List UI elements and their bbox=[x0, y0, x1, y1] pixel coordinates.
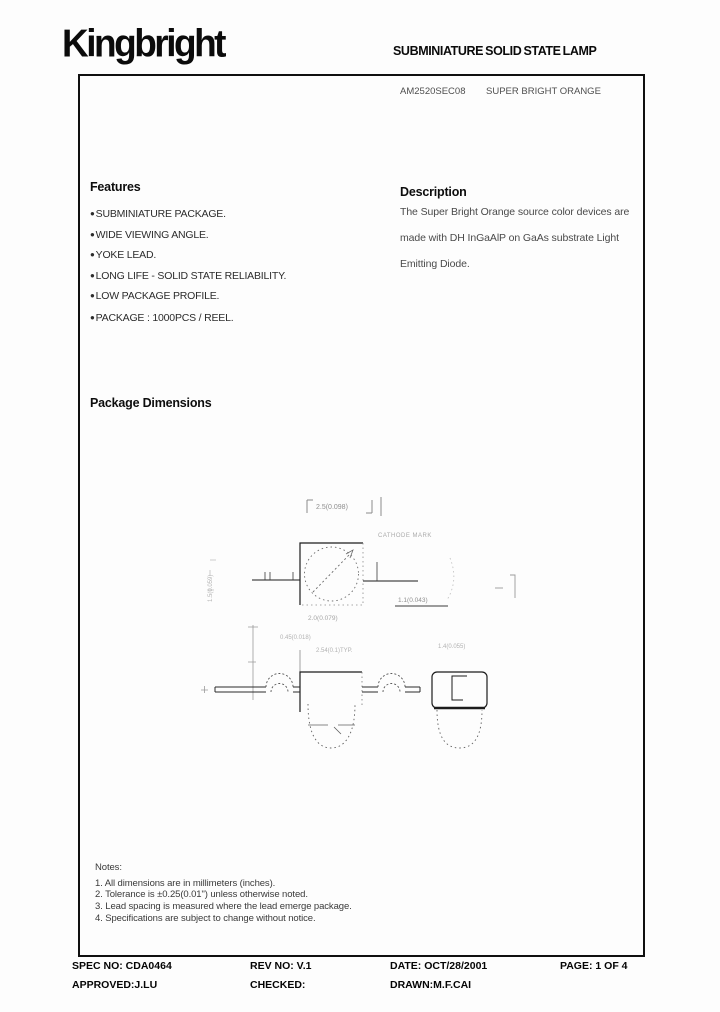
features-heading: Features bbox=[90, 180, 380, 194]
description-line: made with DH InGaAlP on GaAs substrate L… bbox=[400, 225, 650, 251]
bullet-icon: ● bbox=[90, 313, 95, 322]
package-dimensions-heading: Package Dimensions bbox=[90, 396, 211, 410]
document-title: SUBMINIATURE SOLID STATE LAMP bbox=[393, 44, 596, 58]
left-height-label: 1.5(0.059) bbox=[208, 575, 214, 602]
date: DATE: OCT/28/2001 bbox=[390, 960, 487, 972]
features-section: Features ●SUBMINIATURE PACKAGE. ●WIDE VI… bbox=[90, 180, 380, 334]
lead-dimension-label: 1.1(0.043) bbox=[398, 597, 428, 604]
package-dimensions-drawing: 2.5(0.098) 1.5(0.059) CATHODE MARK 1.1(0… bbox=[150, 490, 570, 810]
note-item: 3. Lead spacing is measured where the le… bbox=[95, 901, 352, 913]
depth-label: 2.0(0.079) bbox=[308, 615, 338, 622]
notes-section: Notes: 1. All dimensions are in millimet… bbox=[95, 862, 352, 925]
bullet-icon: ● bbox=[90, 230, 95, 239]
note-item: 4. Specifications are subject to change … bbox=[95, 913, 352, 925]
checked-by: CHECKED: bbox=[250, 979, 305, 991]
page-number: PAGE: 1 OF 4 bbox=[560, 960, 628, 972]
bullet-icon: ● bbox=[90, 250, 95, 259]
spec-no: SPEC NO: CDA0464 bbox=[72, 960, 172, 972]
cathode-mark-label: CATHODE MARK bbox=[378, 533, 432, 539]
description-line: The Super Bright Orange source color dev… bbox=[400, 199, 650, 225]
pad-label: 0.45(0.018) bbox=[280, 635, 311, 641]
description-section: Description The Super Bright Orange sour… bbox=[400, 185, 650, 277]
top-view bbox=[208, 543, 515, 605]
note-item: 2. Tolerance is ±0.25(0.01") unless othe… bbox=[95, 889, 352, 901]
part-color-name: SUPER BRIGHT ORANGE bbox=[486, 86, 601, 97]
approved-by: APPROVED:J.LU bbox=[72, 979, 157, 991]
feature-item: ●LONG LIFE - SOLID STATE RELIABILITY. bbox=[90, 270, 380, 282]
part-line: AM2520SEC08 SUPER BRIGHT ORANGE bbox=[400, 86, 465, 97]
drawn-by: DRAWN:M.F.CAI bbox=[390, 979, 471, 991]
bullet-icon: ● bbox=[90, 291, 95, 300]
top-width-label: 2.5(0.098) bbox=[316, 504, 348, 511]
bullet-icon: ● bbox=[90, 209, 95, 218]
notes-heading: Notes: bbox=[95, 862, 352, 874]
rev-no: REV NO: V.1 bbox=[250, 960, 311, 972]
feature-item: ●WIDE VIEWING ANGLE. bbox=[90, 229, 380, 241]
feature-item: ●SUBMINIATURE PACKAGE. bbox=[90, 208, 380, 220]
bullet-icon: ● bbox=[90, 271, 95, 280]
feature-item: ●YOKE LEAD. bbox=[90, 249, 380, 261]
side-width-label: 1.4(0.055) bbox=[438, 644, 465, 650]
kingbright-logo: Kingbright bbox=[62, 22, 224, 66]
features-list: ●SUBMINIATURE PACKAGE. ●WIDE VIEWING ANG… bbox=[90, 208, 380, 324]
part-number: AM2520SEC08 bbox=[400, 86, 465, 97]
feature-item: ●PACKAGE : 1000PCS / REEL. bbox=[90, 312, 380, 324]
pitch-label: 2.54(0.1)TYP. bbox=[316, 648, 353, 654]
front-view bbox=[201, 625, 420, 748]
description-heading: Description bbox=[400, 185, 650, 199]
side-view bbox=[432, 672, 487, 748]
feature-item: ●LOW PACKAGE PROFILE. bbox=[90, 290, 380, 302]
note-item: 1. All dimensions are in millimeters (in… bbox=[95, 878, 352, 890]
description-line: Emitting Diode. bbox=[400, 251, 650, 277]
